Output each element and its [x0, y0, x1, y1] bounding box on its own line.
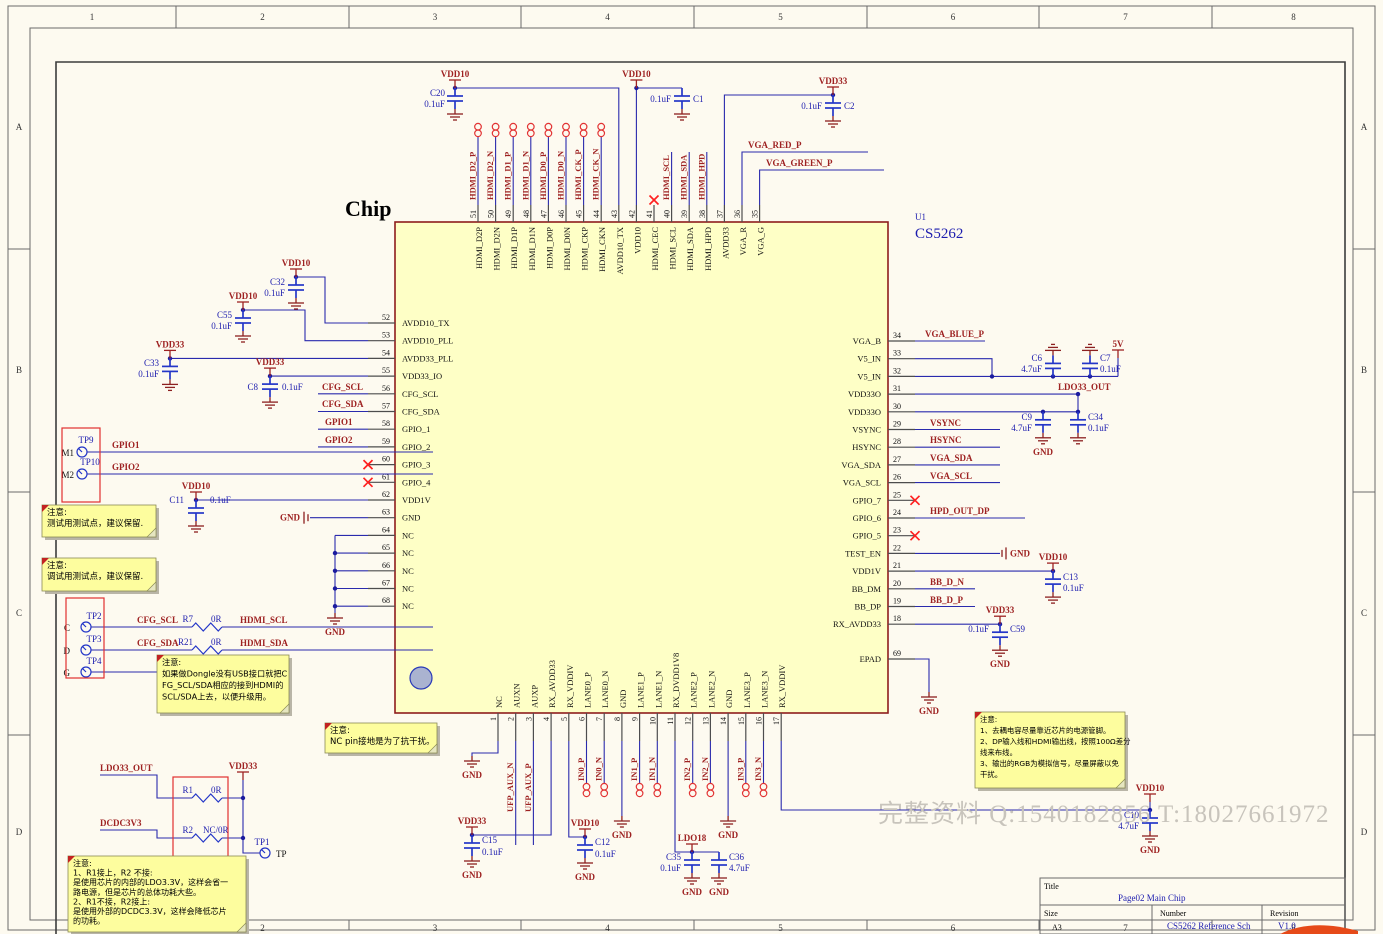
note-text-line: 注意: [162, 657, 181, 667]
resistor-refdes: R7 [182, 614, 193, 624]
gnd-symbol[interactable]: GND [1140, 831, 1161, 855]
note-text-line: 1、去耦电容尽量靠近芯片的电源管脚。 [980, 726, 1110, 735]
pin-name: AUXP [529, 685, 539, 708]
schematic-sheet: 1122334455667788AABBCCDDU1CS526251HDMI_D… [0, 0, 1383, 934]
pin-name: AVDD10_TX [402, 318, 450, 328]
gnd-label: GND [325, 627, 346, 637]
note[interactable]: 注意:测试用测试点，建议保留. [42, 505, 159, 540]
net-label-vertical: HDMI_SDA [679, 154, 689, 200]
gnd-symbol[interactable] [1045, 344, 1061, 355]
power-net-label: VDD10 [182, 481, 211, 491]
net-label-vertical: HDMI_HPD [696, 154, 706, 200]
titleblock-number-label: Number [1160, 909, 1187, 918]
note-text-line: 调试用测试点，建议保留. [47, 571, 143, 582]
zone-col-label: 6 [951, 12, 956, 22]
pin-number: 37 [715, 210, 724, 218]
gnd-label: GND [990, 659, 1011, 669]
pin-name: GPIO_5 [853, 531, 881, 541]
schematic-canvas: 1122334455667788AABBCCDDU1CS526251HDMI_D… [0, 0, 1383, 934]
cap-value: 0.1uF [595, 849, 616, 859]
gnd-symbol[interactable] [288, 298, 304, 309]
zone-col-label: 3 [433, 12, 438, 22]
gnd-symbol[interactable]: GND [990, 645, 1011, 669]
pin-name: HDMI_CKN [597, 227, 607, 272]
pin-name: GND [618, 690, 628, 708]
capacitor-C35[interactable]: C350.1uF [660, 852, 700, 873]
testpoint-label: TP9 [78, 435, 94, 445]
gnd-symbol[interactable]: GND [682, 873, 703, 897]
resistor-body[interactable] [192, 794, 222, 802]
pin-name: BB_DM [852, 584, 882, 594]
pin-number: 12 [684, 717, 693, 725]
net-label: VGA_GREEN_P [766, 158, 833, 168]
resistor-body[interactable] [192, 834, 222, 842]
pin-name: HSYNC [852, 442, 881, 452]
junction-dot [333, 586, 337, 590]
testpoint-TP2[interactable]: TP2C [64, 611, 102, 633]
pin-number: 42 [627, 210, 636, 218]
cap-refdes: C2 [844, 101, 855, 111]
pin-number: 35 [751, 210, 760, 218]
note-text-line: 干扰。 [980, 770, 1002, 779]
ferrite-coil-icon [492, 123, 499, 136]
capacitor-C36[interactable]: C364.7uF [711, 852, 750, 873]
pin-number: 58 [382, 419, 390, 428]
pin-name: HDMI_D1N [527, 227, 537, 270]
gnd-label: GND [682, 887, 703, 897]
capacitor-C32[interactable]: C320.1uF [264, 277, 304, 298]
cap-value: 0.1uF [801, 101, 822, 111]
pin-number: 59 [382, 437, 390, 446]
pin-number: 13 [701, 717, 710, 725]
capacitor-C11[interactable]: C110.1uF [169, 495, 230, 521]
junction-dot [241, 836, 245, 840]
power-flag-VDD10[interactable]: VDD10 [182, 481, 211, 500]
cap-refdes: C32 [270, 277, 285, 287]
wire [296, 277, 368, 323]
capacitor-C55[interactable]: C550.1uF [211, 310, 251, 331]
ferrite-coil-icon [580, 123, 587, 136]
ferrite-coil-icon [601, 783, 608, 796]
gnd-symbol[interactable]: GND [709, 873, 730, 897]
pin-number: 38 [698, 210, 707, 218]
cap-refdes: C55 [217, 310, 233, 320]
pin-name: GND [402, 513, 420, 523]
power-flag-VDD10[interactable]: VDD10 [282, 258, 311, 277]
titleblock-size-value: A3 [1052, 923, 1062, 932]
capacitor-C2[interactable]: C20.1uF [801, 95, 854, 116]
pin-number: 55 [382, 366, 390, 375]
titleblock-size-label: Size [1044, 909, 1058, 918]
gnd-symbol[interactable]: GND [462, 756, 483, 780]
testpoint-tag: G [64, 668, 71, 678]
note-text-line: 注意: [47, 507, 67, 518]
gnd-symbol[interactable] [262, 397, 278, 408]
gnd-symbol[interactable]: GND [919, 692, 940, 716]
cap-value: 0.1uF [1063, 583, 1084, 593]
gnd-label: GND [575, 872, 596, 882]
cap-value: 4.7uF [1021, 364, 1042, 374]
power-flag-VDD33[interactable]: VDD33 [458, 816, 487, 835]
power-net-label: VDD33 [229, 761, 258, 771]
pin-name: LANE1_N [653, 671, 663, 708]
gnd-symbol[interactable]: GND [1033, 433, 1054, 457]
net-label: LDO33_OUT [1058, 382, 1111, 392]
pin-name: VDD33O [848, 407, 881, 417]
net-label: VGA_SCL [930, 471, 972, 481]
net-label-vertical: IN0_N [594, 756, 604, 781]
net-label: VGA_SDA [930, 453, 973, 463]
resistor-R2[interactable]: R2NC/0R [182, 825, 228, 842]
note-text-line: FG_SCL/SDA相应的接到HDMI的 [162, 680, 283, 690]
cap-refdes: C9 [1021, 412, 1032, 422]
ferrite-coil-icon [563, 123, 570, 136]
pin-name: HDMI_SDA [685, 226, 695, 271]
resistor-refdes: R1 [182, 785, 193, 795]
cap-refdes: C8 [247, 382, 258, 392]
pin-name: NC [402, 584, 414, 594]
zone-row-label: C [1361, 608, 1367, 618]
pin-name: AVDD10_PLL [402, 336, 453, 346]
pin-number: 67 [382, 579, 390, 588]
pin-number: 25 [893, 490, 901, 499]
power-flag-VDD10[interactable]: VDD10 [622, 69, 651, 88]
pin-name: HDMI_CKP [580, 227, 590, 271]
net-label-vertical: IN1_P [629, 758, 639, 781]
testpoint-tag: C [64, 623, 70, 633]
ferrite-coil-icon [636, 783, 643, 796]
power-flag-VDD33[interactable]: VDD33 [819, 76, 848, 95]
pin-name: LANE0_N [600, 671, 610, 708]
gnd-label: GND [280, 513, 301, 523]
resistor-body[interactable] [192, 623, 222, 631]
note[interactable]: 注意:NC pin接地是为了抗干扰。 [325, 723, 440, 756]
gnd-label: GND [462, 770, 483, 780]
net-label: GPIO2 [325, 435, 353, 445]
titleblock-revision-label: Revision [1270, 909, 1298, 918]
gnd-symbol[interactable] [825, 116, 841, 127]
cap-refdes: C6 [1031, 353, 1042, 363]
net-label-vertical: HDMI_D1_P [503, 152, 513, 200]
pin-name: HDMI_D2P [474, 227, 484, 269]
resistor-R7[interactable]: R70R [182, 614, 222, 631]
zone-col-label: 5 [778, 12, 783, 22]
pin-name: AVDD33 [720, 227, 730, 259]
pin-name: GPIO_4 [402, 477, 431, 487]
no-connect-x-icon [650, 196, 659, 205]
net-label: HDMI_SDA [240, 638, 289, 648]
zone-row-label: A [16, 122, 23, 132]
pin-number: 3 [524, 717, 533, 721]
pin-number: 27 [893, 455, 901, 464]
pin-name: VGA_B [853, 336, 882, 346]
wire [724, 95, 833, 205]
pin-name: LANE0_P [583, 672, 593, 708]
pin-name: HDMI_D2N [492, 227, 502, 270]
zone-col-label: 5 [778, 923, 783, 933]
pin-name: NC [402, 601, 414, 611]
gnd-label: GND [718, 830, 739, 840]
pin-number: 69 [893, 649, 901, 658]
power-net-label: 5V [1113, 339, 1125, 349]
gnd-symbol[interactable] [1045, 592, 1061, 603]
gnd-symbol[interactable]: GND [575, 858, 596, 882]
power-flag-VDD10[interactable]: VDD10 [441, 69, 470, 88]
pin-name: AVDD10_TX [615, 227, 625, 275]
zone-row-label: A [1361, 122, 1368, 132]
pin-name: VDD1V [402, 495, 432, 505]
power-flag-5V[interactable]: 5V [1112, 339, 1124, 358]
pin-number: 47 [539, 210, 548, 218]
gnd-port: GND [1002, 547, 1031, 559]
cap-refdes: C11 [169, 495, 184, 505]
net-label: CFG_SDA [137, 638, 179, 648]
pin-number: 52 [382, 313, 390, 322]
pin-number: 18 [893, 614, 901, 623]
pin-name: TEST_EN [845, 548, 881, 558]
pin-name: LANE2_P [689, 672, 699, 708]
cap-value: 0.1uF [660, 863, 681, 873]
gnd-symbol[interactable]: GND [462, 856, 483, 880]
pin-number: 33 [893, 349, 901, 358]
note[interactable]: 注意:1、R1接上，R2 不接:是使用芯片的内部的LDO3.3V，这样会省一路电… [68, 856, 249, 934]
pin-name: HDMI_D1P [509, 227, 519, 269]
power-flag-VDD10[interactable]: VDD10 [1136, 783, 1165, 802]
pin-number: 9 [631, 717, 640, 721]
junction-dot [333, 551, 337, 555]
zone-row-label: D [16, 827, 23, 837]
pin-number: 41 [645, 210, 654, 218]
pin-name: AUXN [512, 683, 522, 708]
power-flag-VDD10[interactable]: VDD10 [571, 818, 600, 837]
pin-name: EPAD [860, 654, 881, 664]
zone-col-label: 6 [951, 923, 956, 933]
cap-refdes: C59 [1010, 624, 1026, 634]
power-flag-VDD33[interactable]: VDD33 [229, 761, 258, 780]
testpoint-TP10[interactable]: TP10M2 [61, 457, 100, 480]
ferrite-coil-icon [583, 783, 590, 796]
pin-name: GPIO_3 [402, 460, 430, 470]
pin-number: 63 [382, 508, 390, 517]
capacitor-C13[interactable]: C130.1uF [1045, 571, 1084, 593]
pin-number: 31 [893, 384, 901, 393]
pin-name: LANE3_N [760, 671, 770, 708]
note[interactable]: 注意:1、去耦电容尽量靠近芯片的电源管脚。2、DP输入线和HDMI输出线，按照1… [975, 712, 1131, 791]
net-label: VGA_BLUE_P [925, 329, 985, 339]
capacitor-C15[interactable]: C150.1uF [464, 835, 503, 857]
capacitor-C20[interactable]: C200.1uF [424, 88, 463, 109]
pin-number: 30 [893, 402, 901, 411]
net-label: HPD_OUT_DP [930, 506, 990, 516]
resistor-R1[interactable]: R10R [182, 785, 222, 802]
chip-U1[interactable]: U1CS526251HDMI_D2P50HDMI_D2N49HDMI_D1P48… [368, 205, 963, 741]
pin-number: 11 [666, 717, 675, 725]
gnd-symbol[interactable] [188, 521, 204, 532]
resistor-R21[interactable]: R210R [178, 637, 222, 654]
cap-refdes: C34 [1088, 412, 1104, 422]
power-net-label: VDD33 [458, 816, 487, 826]
cap-value: 0.1uF [1100, 364, 1121, 374]
net-label: GPIO1 [112, 440, 140, 450]
pin-number: 28 [893, 437, 901, 446]
pin-name: RX_AVDD33 [547, 660, 557, 708]
pin-number: 65 [382, 543, 390, 552]
ferrite-coil-icon [528, 123, 535, 136]
resistor-value: 0R [211, 785, 222, 795]
pin-number: 8 [613, 717, 622, 721]
pin-number: 36 [733, 210, 742, 218]
ferrite-coil-icon [598, 123, 605, 136]
pin-number: 39 [680, 210, 689, 218]
pin-number: 57 [382, 402, 390, 411]
capacitor-C59[interactable]: C590.1uF [968, 624, 1025, 645]
pin-name: V5_IN [857, 371, 881, 381]
pin-name: HDMI_CEC [650, 227, 660, 271]
power-net-label: LDO18 [678, 833, 707, 843]
cap-value: 0.1uF [211, 321, 232, 331]
pin-name: RX_VDDIV [777, 664, 787, 708]
gnd-symbol[interactable] [674, 109, 690, 120]
power-flag-VDD10[interactable]: VDD10 [1039, 552, 1068, 571]
watermark-text: 完整资料 Q:1540182856 T:18027661972 [878, 800, 1330, 828]
gnd-symbol[interactable] [235, 331, 251, 342]
testpoint-label: TP3 [86, 634, 102, 644]
pin-number: 51 [469, 210, 478, 218]
power-flag-VDD33[interactable]: VDD33 [156, 339, 185, 358]
capacitor-C8[interactable]: C80.1uF [247, 376, 302, 397]
net-label: BB_D_N [930, 577, 965, 587]
pin-name: GPIO_7 [853, 495, 881, 505]
note[interactable]: 注意:如果做Dongle没有USB接口就把CFG_SCL/SDA相应的接到HDM… [157, 655, 292, 716]
cap-value: 0.1uF [138, 369, 159, 379]
cap-refdes: C36 [729, 852, 745, 862]
testpoint-tag: M2 [61, 470, 74, 480]
gnd-symbol[interactable]: GND [718, 816, 739, 840]
pin-number: 34 [893, 331, 901, 340]
power-flag-VDD33[interactable]: VDD33 [986, 605, 1015, 624]
ferrite-coil-icon [707, 783, 714, 796]
capacitor-C6[interactable]: C64.7uF [1021, 353, 1061, 376]
pin-name: NC [494, 696, 504, 708]
testpoint-label: TP2 [86, 611, 101, 621]
zone-col-label: 4 [605, 923, 610, 933]
pin-number: 60 [382, 455, 390, 464]
cap-value: 4.7uF [1011, 423, 1032, 433]
net-label-vertical: UFP_AUX_P [523, 763, 533, 812]
gnd-symbol[interactable] [1070, 433, 1086, 444]
power-flag-VDD33[interactable]: VDD33 [256, 357, 285, 376]
chip-partnumber: CS5262 [915, 226, 963, 242]
testpoint-TP9[interactable]: TP9M1 [61, 435, 94, 458]
resistor-value: NC/0R [203, 825, 229, 835]
net-label-vertical: HDMI_CK_N [591, 148, 601, 200]
testpoint-TP1[interactable]: TP1TP [254, 837, 286, 859]
pin-name: LANE3_P [742, 672, 752, 708]
chip-body[interactable] [395, 222, 888, 713]
capacitor-C1[interactable]: C10.1uF [650, 88, 703, 109]
power-net-label: VDD10 [622, 69, 651, 79]
capacitor-C34[interactable]: C340.1uF [1070, 412, 1109, 433]
gnd-label: GND [1033, 447, 1054, 457]
resistor-body[interactable] [192, 646, 222, 654]
gnd-symbol[interactable]: GND [612, 816, 633, 840]
net-label: HDMI_SCL [240, 615, 288, 625]
capacitor-C33[interactable]: C330.1uF [138, 358, 178, 379]
gnd-symbol[interactable]: GND [325, 613, 346, 637]
note-text-line: 注意: [47, 560, 67, 571]
gnd-label: GND [1010, 548, 1031, 558]
junction-dot [333, 569, 337, 573]
power-flag-LDO18[interactable]: LDO18 [678, 833, 707, 852]
pin-number: 1 [489, 717, 498, 721]
power-net-label: VDD10 [282, 258, 311, 268]
pin-number: 22 [893, 543, 901, 552]
pin-name: HDMI_D0N [562, 227, 572, 270]
note-text-line: 1、R1接上，R2 不接: [73, 868, 153, 878]
pin-name: VDD10 [632, 227, 642, 254]
note-text-line: 2、R1不接，R2接上: [73, 896, 150, 906]
pin-number: 66 [382, 561, 390, 570]
net-label-vertical: UFP_AUX_N [505, 762, 515, 812]
resistor-value: 0R [211, 637, 222, 647]
testpoint-TP4[interactable]: TP4G [64, 656, 102, 678]
cap-value: 0.1uF [210, 495, 231, 505]
note[interactable]: 注意:调试用测试点，建议保留. [42, 558, 159, 594]
power-net-label: VDD10 [1136, 783, 1165, 793]
capacitor-C7[interactable]: C70.1uF [1082, 353, 1121, 376]
pin-number: 43 [610, 210, 619, 218]
pin-name: VDD1V [852, 566, 882, 576]
pin-name: CFG_SDA [402, 407, 441, 417]
titleblock-title-label: Title [1044, 882, 1059, 891]
cap-value: 0.1uF [1088, 423, 1109, 433]
power-flag-VDD10[interactable]: VDD10 [229, 291, 258, 310]
net-label-vertical: IN3_N [753, 756, 763, 781]
pin-number: 54 [382, 348, 390, 357]
power-net-label: VDD10 [571, 818, 600, 828]
pin-name: VDD33_IO [402, 371, 442, 381]
gnd-symbol[interactable] [1082, 344, 1098, 355]
power-net-label: VDD33 [256, 357, 285, 367]
pin-number: 44 [592, 210, 601, 218]
power-net-label: VDD10 [229, 291, 258, 301]
pin-number: 20 [893, 579, 901, 588]
note-text-line: 路电源，但是芯片的总体功耗大些。 [73, 887, 201, 897]
gnd-symbol[interactable] [162, 379, 178, 390]
junction-dot [1076, 392, 1080, 396]
cap-value: 0.1uF [650, 94, 671, 104]
power-net-label: VDD33 [819, 76, 848, 86]
pin-number: 48 [522, 210, 531, 218]
wire [100, 830, 192, 838]
pin-number: 4 [542, 717, 551, 721]
zone-row-label: D [1361, 827, 1368, 837]
ferrite-coil-icon [743, 783, 750, 796]
gnd-symbol[interactable] [447, 109, 463, 120]
testpoint-TP3[interactable]: TP3D [64, 634, 102, 656]
free-label: Chip [345, 196, 391, 221]
gnd-label: GND [919, 706, 940, 716]
capacitor-C9[interactable]: C94.7uF [1011, 412, 1051, 433]
ferrite-coil-icon [510, 123, 517, 136]
titleblock-number-value: CS5262 Reference Sch [1167, 921, 1251, 931]
capacitor-C12[interactable]: C120.1uF [577, 837, 616, 859]
line [79, 449, 83, 453]
pin-name: GPIO_1 [402, 424, 430, 434]
net-label: HSYNC [930, 435, 962, 445]
note-text-line: 线来布线。 [980, 748, 1017, 757]
cap-refdes: C7 [1100, 353, 1111, 363]
